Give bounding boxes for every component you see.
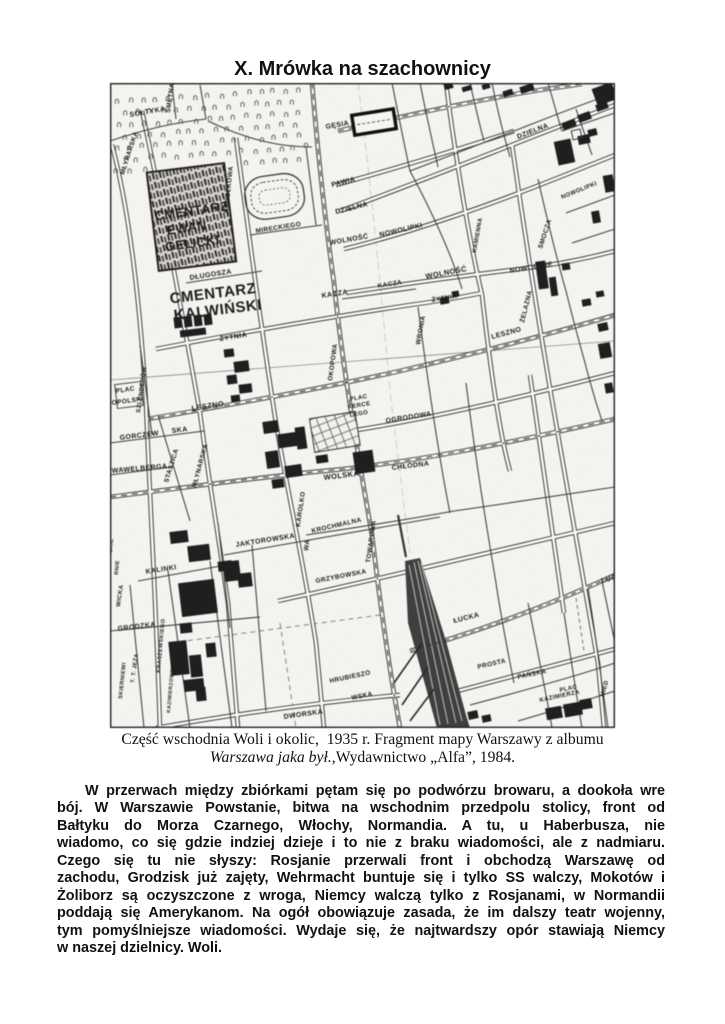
- svg-text:RNIE: RNIE: [114, 560, 121, 575]
